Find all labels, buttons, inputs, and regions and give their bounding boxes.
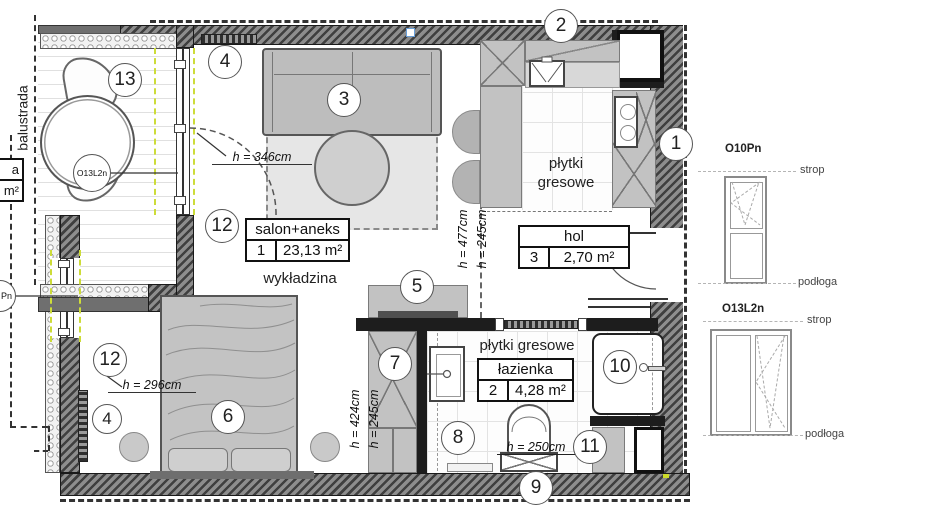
marker-11: 11 — [573, 430, 607, 464]
wardrobe-right-wall — [417, 331, 427, 473]
bathtub-washer-wall — [590, 416, 665, 426]
radiator-left — [78, 390, 88, 462]
bathroom-top-wall-left — [356, 318, 495, 331]
left-wall — [60, 215, 80, 473]
height-note-salon2: h = 296cm — [108, 378, 196, 393]
shaft-top-right — [616, 30, 664, 82]
room-table-salon: salon+aneks 1 23,13 m² — [245, 218, 350, 262]
bathtub-drain — [639, 363, 648, 372]
bar-stool-top — [452, 110, 480, 154]
legend-win1-podloga-line — [698, 283, 796, 284]
sofa-armrest-left — [272, 52, 273, 132]
edge-table-row-2: m² — [0, 181, 22, 200]
terrace-boundary-step-h — [10, 426, 48, 428]
kitchen-cabinet-x — [480, 40, 525, 86]
height-note-salon: h = 346cm — [212, 150, 312, 165]
cooktop — [614, 96, 638, 148]
marker-3: 3 — [327, 83, 361, 117]
coffee-table — [314, 130, 390, 206]
nightstand-left — [119, 432, 149, 462]
room-area-hol: 2,70 m² — [550, 248, 628, 267]
left-window-sash-top — [58, 260, 70, 268]
yellow-tick — [663, 474, 669, 478]
right-wall-dashed-line — [684, 25, 687, 475]
height-note-wardrobe-245: h = 245cm — [367, 373, 381, 465]
salon-floor-label: wykładzina — [245, 270, 355, 289]
top-wall-dashed-line — [150, 20, 658, 23]
balcony-railing-label: balustrada — [15, 76, 31, 161]
shaft-bottom-right — [634, 427, 664, 473]
marker-5: 5 — [400, 270, 434, 304]
bathroom-door-leaf — [504, 320, 578, 329]
balcony-window-sash-1 — [174, 60, 186, 69]
kitchen-upper-cabinet — [525, 40, 620, 62]
selection-handle — [406, 28, 415, 37]
balcony-top-wall-insulation — [40, 33, 186, 49]
room-number-hol: 3 — [520, 248, 550, 267]
legend-win1-podloga-label: podłoga — [798, 276, 837, 288]
marker-10: 10 — [603, 350, 637, 384]
kitchen-hol-divider — [482, 211, 612, 212]
marker-7: 7 — [378, 347, 412, 381]
bed-pillow-right — [231, 448, 291, 472]
marker-4-top: 4 — [208, 45, 242, 79]
burner-2 — [620, 125, 636, 141]
radiator-top — [201, 34, 257, 44]
legend-win1-code: O10Pn — [725, 143, 761, 155]
legend-win2-pane-right — [755, 335, 788, 432]
marker-12-top: 12 — [205, 209, 239, 243]
balcony-window-sash-3 — [174, 196, 186, 205]
cabinet-5-front — [378, 311, 458, 318]
room-table-bathroom: łazienka 2 4,28 m² — [477, 358, 574, 402]
height-note-wardrobe-424: h = 424cm — [348, 373, 362, 465]
legend-win2-strop-label: strop — [807, 314, 831, 326]
bottom-wall-dashed-line — [60, 499, 690, 502]
marker-9: 9 — [519, 471, 553, 505]
entrance-threshold-line-1 — [588, 298, 668, 300]
room-table-hol: hol 3 2,70 m² — [518, 225, 630, 269]
balcony-door-swing-arc — [190, 128, 276, 216]
bathroom-floor-label: płytki gresowe — [462, 337, 592, 356]
washbasin-inner — [436, 354, 461, 397]
terrace-boundary-step-v — [48, 426, 50, 451]
legend-win1-strop-label: strop — [800, 164, 824, 176]
sofa-armrest-right — [431, 52, 432, 132]
kitchen-sink — [529, 60, 565, 87]
insulation-marker-left-a — [50, 250, 52, 342]
kitchen-cabinet-x-lower-right — [612, 142, 656, 206]
height-note-kitchen-477: h = 477cm — [456, 193, 470, 285]
bathroom-top-wall-right — [587, 318, 658, 331]
window-tag-o10pn-partial: Pn — [0, 280, 16, 312]
nightstand-right — [310, 432, 340, 462]
legend-win2-drawing — [710, 329, 792, 436]
marker-8: 8 — [441, 421, 475, 455]
bathroom-door-jamb-left — [495, 318, 504, 331]
height-note-kitchen-245: h = 245cm — [475, 193, 489, 285]
bathtub-tap-pipe — [648, 366, 666, 371]
marker-6: 6 — [211, 400, 245, 434]
edge-table-row-1: a — [0, 160, 22, 181]
balcony-railing-line — [34, 15, 36, 285]
washbasin — [429, 346, 465, 402]
bathroom-door-jamb-right — [578, 318, 587, 331]
room-name-hol: hol — [520, 227, 628, 248]
height-note-bath: h = 250cm — [497, 440, 575, 455]
bath-mat — [447, 463, 493, 472]
legend-win2-code: O13L2n — [722, 303, 764, 315]
insulation-marker-balcony-a — [154, 48, 156, 215]
kitchen-floor-label: płytki gresowe — [522, 155, 610, 193]
bathtub-inner-line — [652, 338, 653, 410]
legend-win2-podloga-label: podłoga — [805, 428, 844, 440]
bed-base — [150, 471, 314, 479]
legend-win1-pane-top — [730, 182, 763, 229]
toilet-cistern — [500, 452, 558, 472]
marker-2: 2 — [544, 9, 578, 43]
room-area-salon: 23,13 m² — [277, 241, 348, 260]
kitchen-counter-left — [480, 86, 522, 208]
balcony-window-wall-top — [176, 25, 194, 48]
balcony-window-sash-2 — [174, 124, 186, 133]
room-name-bathroom: łazienka — [479, 360, 572, 381]
floor-plan: balustrada a m² Pn — [0, 0, 950, 520]
burner-1 — [620, 104, 636, 120]
entrance-threshold-line-2 — [588, 306, 650, 308]
edge-partial-table: a m² — [0, 158, 24, 202]
legend-win2-pane-left — [716, 335, 751, 432]
room-number-salon: 1 — [247, 241, 277, 260]
legend-win1-pane-bottom — [730, 233, 763, 279]
left-window-sash-bottom — [58, 328, 70, 336]
window-tag-o13l2n: O13L2n — [73, 154, 111, 192]
legend-win1-drawing — [724, 176, 767, 284]
insulation-marker-balcony-b — [193, 48, 195, 215]
kitchen-cabinet-x-upper-right — [636, 92, 656, 148]
room-name-salon: salon+aneks — [247, 220, 348, 241]
insulation-marker-left-b — [79, 250, 81, 342]
legend-win1-strop-line — [698, 171, 796, 172]
legend-win2-strop-line — [703, 321, 803, 322]
legend-win2-podloga-line — [703, 435, 803, 436]
bed-pillow-left — [168, 448, 228, 472]
marker-1: 1 — [659, 127, 693, 161]
room-area-bathroom: 4,28 m² — [509, 381, 572, 400]
marker-4-bottom: 4 — [92, 404, 122, 434]
terrace-boundary-step-h2 — [34, 450, 48, 452]
wardrobe-7-split-line — [392, 427, 394, 473]
entrance-opening — [650, 228, 684, 302]
room-number-bathroom: 2 — [479, 381, 509, 400]
marker-12-bottom: 12 — [93, 343, 127, 377]
marker-13: 13 — [108, 63, 142, 97]
